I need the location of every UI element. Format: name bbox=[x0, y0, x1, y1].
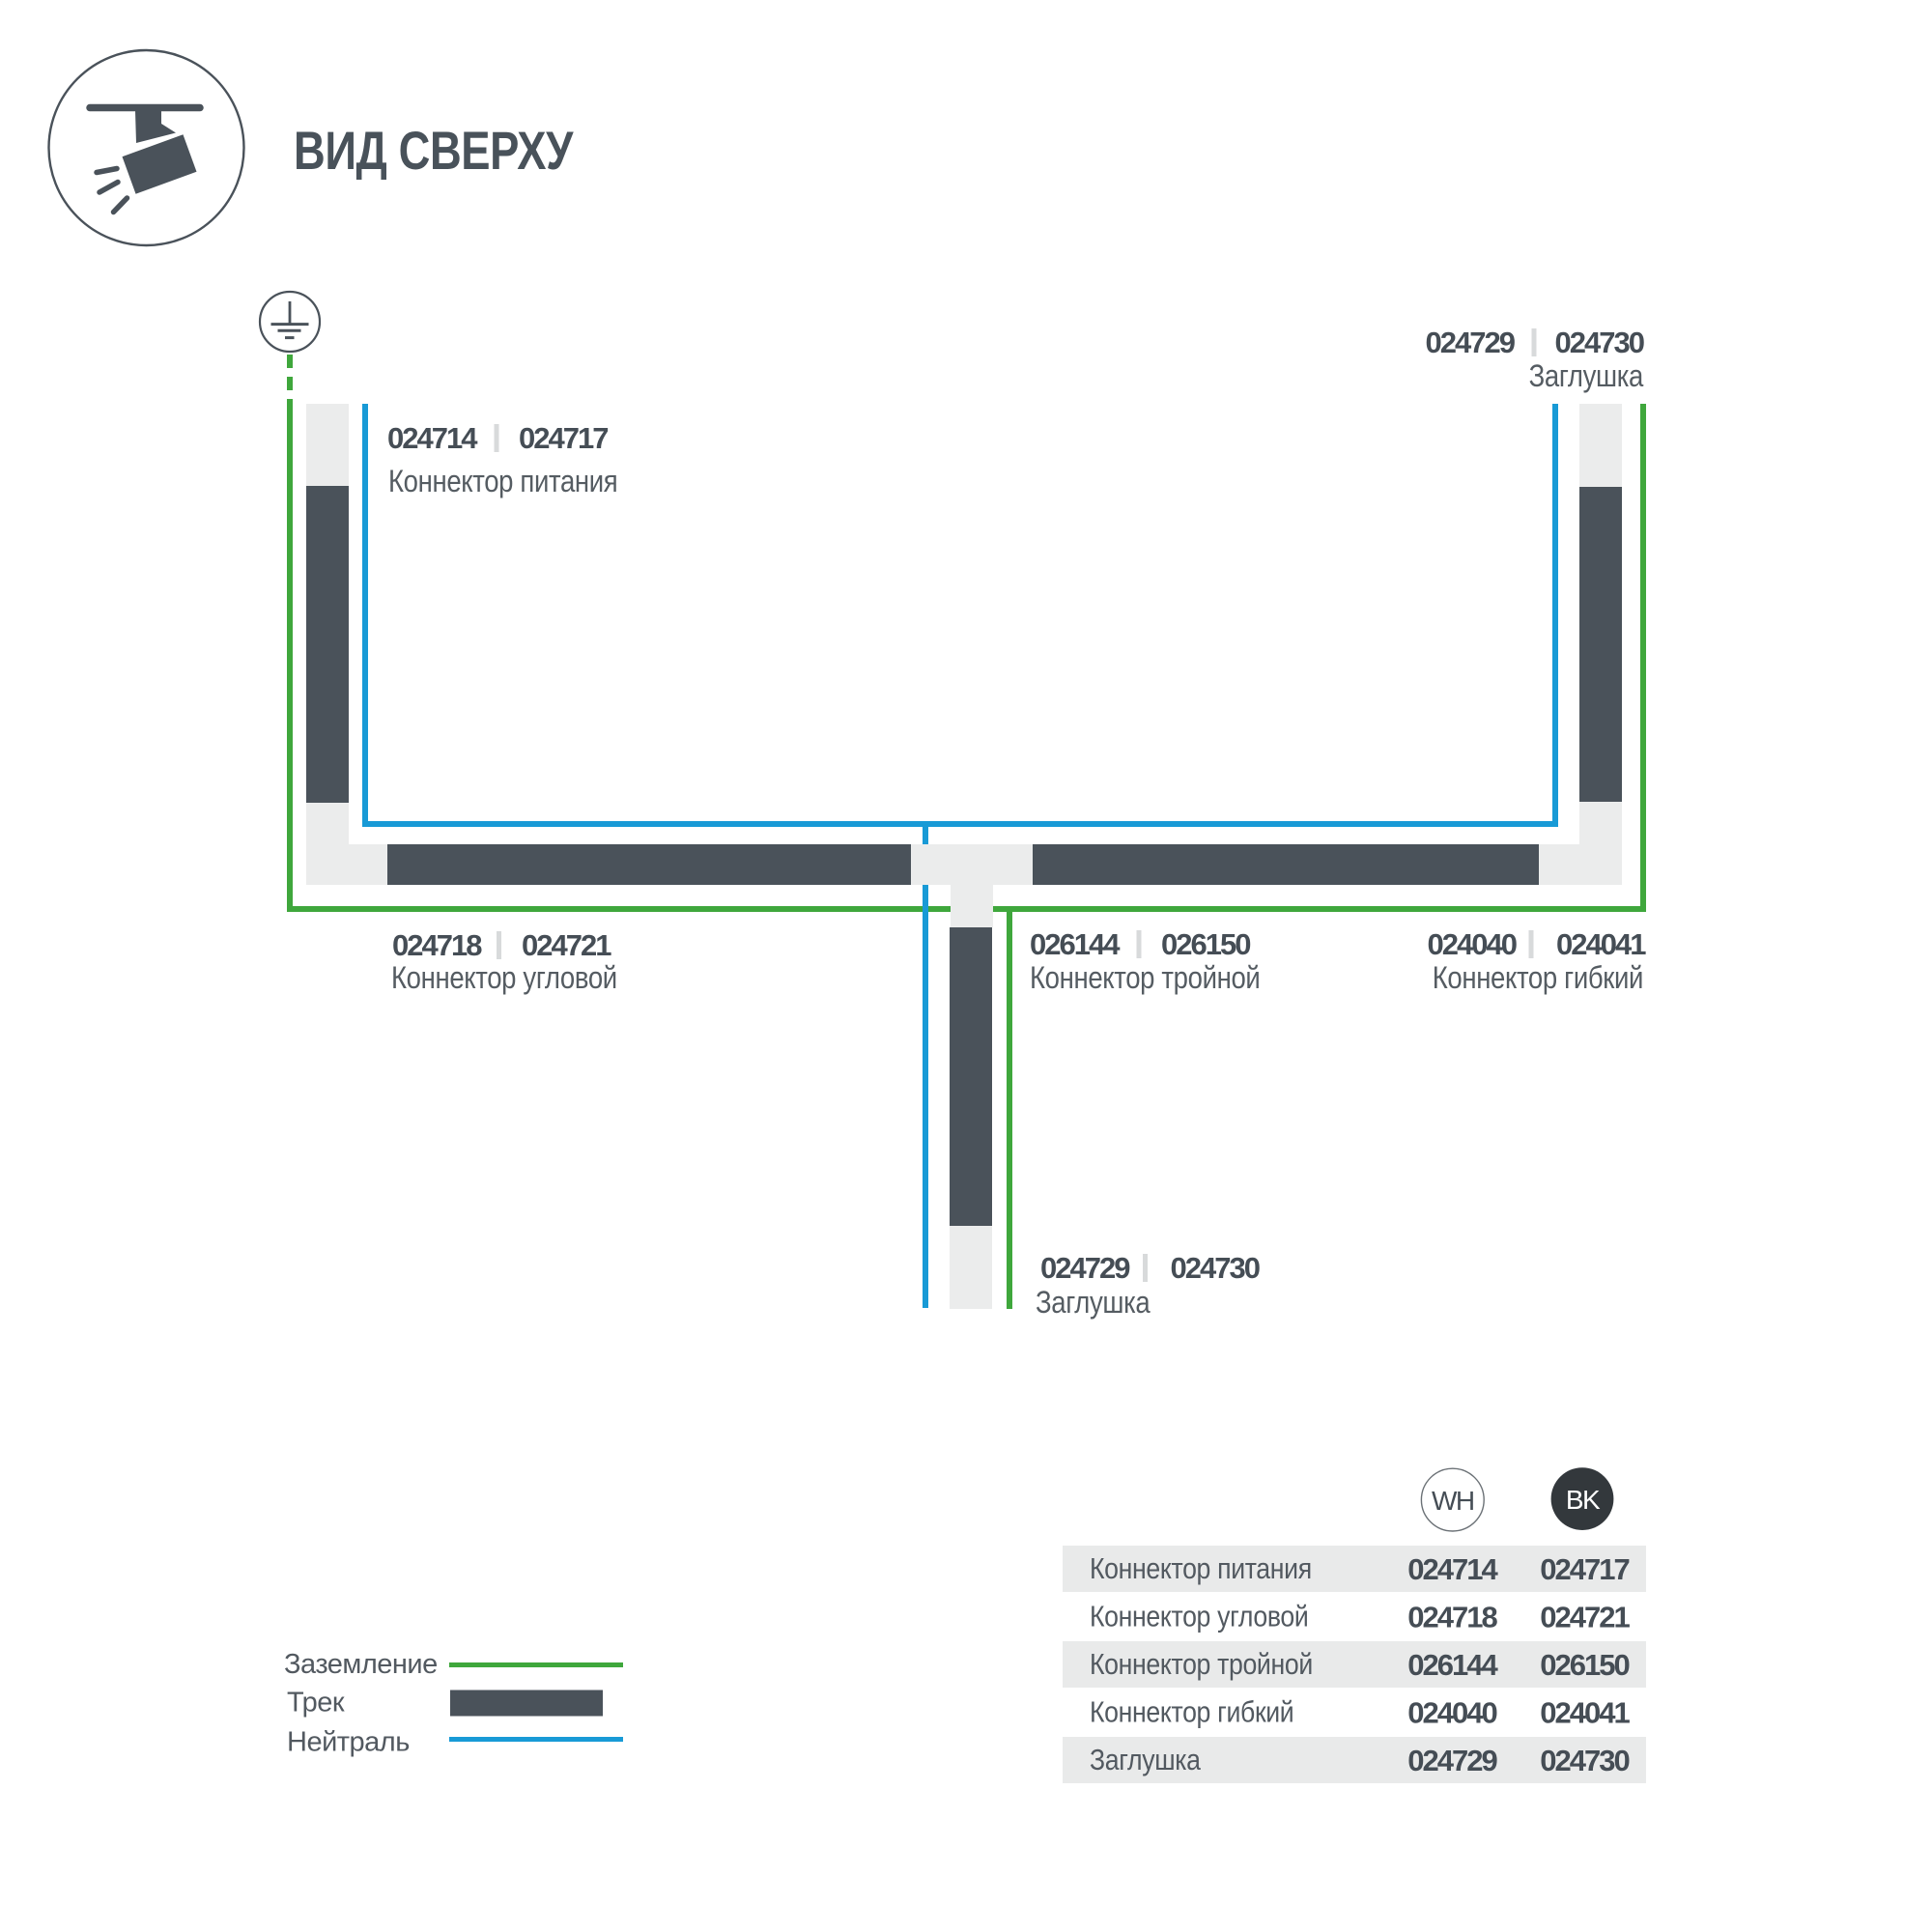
svg-text:Коннектор гибкий: Коннектор гибкий bbox=[1433, 961, 1643, 995]
svg-text:024040: 024040 bbox=[1407, 1696, 1496, 1730]
svg-text:Заземление: Заземление bbox=[284, 1649, 438, 1680]
svg-text:026144: 026144 bbox=[1407, 1648, 1498, 1682]
svg-text:024730: 024730 bbox=[1540, 1744, 1629, 1777]
svg-text:WH: WH bbox=[1432, 1486, 1474, 1516]
svg-text:024729: 024729 bbox=[1040, 1251, 1130, 1285]
svg-text:026150: 026150 bbox=[1161, 927, 1250, 961]
svg-text:024718: 024718 bbox=[392, 928, 482, 962]
svg-text:Коннектор питания: Коннектор питания bbox=[388, 465, 617, 498]
svg-text:Коннектор тройной: Коннектор тройной bbox=[1090, 1648, 1313, 1681]
svg-text:024041: 024041 bbox=[1540, 1696, 1630, 1730]
svg-text:ВИД СВЕРХУ: ВИД СВЕРХУ bbox=[294, 120, 574, 181]
svg-text:024714: 024714 bbox=[1407, 1552, 1498, 1586]
svg-text:Коннектор угловой: Коннектор угловой bbox=[391, 961, 617, 995]
svg-text:Коннектор угловой: Коннектор угловой bbox=[1090, 1601, 1308, 1634]
svg-text:Коннектор тройной: Коннектор тройной bbox=[1030, 961, 1260, 995]
svg-text:024717: 024717 bbox=[519, 421, 608, 455]
svg-text:BK: BK bbox=[1566, 1485, 1601, 1515]
svg-text:024729: 024729 bbox=[1407, 1744, 1497, 1777]
svg-text:024718: 024718 bbox=[1407, 1601, 1497, 1634]
svg-text:024717: 024717 bbox=[1540, 1552, 1629, 1586]
svg-text:Трек: Трек bbox=[287, 1688, 345, 1719]
svg-text:026150: 026150 bbox=[1540, 1648, 1629, 1682]
svg-text:024721: 024721 bbox=[522, 928, 611, 962]
svg-text:Заглушка: Заглушка bbox=[1529, 359, 1644, 393]
svg-text:Заглушка: Заглушка bbox=[1036, 1286, 1151, 1320]
svg-text:Заглушка: Заглушка bbox=[1090, 1744, 1202, 1776]
svg-text:024041: 024041 bbox=[1556, 927, 1646, 961]
svg-text:024721: 024721 bbox=[1540, 1601, 1630, 1634]
svg-text:026144: 026144 bbox=[1030, 927, 1121, 961]
svg-text:Коннектор питания: Коннектор питания bbox=[1090, 1552, 1312, 1585]
svg-text:024714: 024714 bbox=[387, 421, 478, 455]
svg-text:024729: 024729 bbox=[1426, 326, 1516, 359]
svg-text:024730: 024730 bbox=[1171, 1251, 1260, 1285]
svg-text:Коннектор гибкий: Коннектор гибкий bbox=[1090, 1696, 1293, 1729]
svg-text:024040: 024040 bbox=[1428, 927, 1517, 961]
svg-text:024730: 024730 bbox=[1555, 326, 1644, 359]
svg-text:Нейтраль: Нейтраль bbox=[287, 1727, 410, 1758]
